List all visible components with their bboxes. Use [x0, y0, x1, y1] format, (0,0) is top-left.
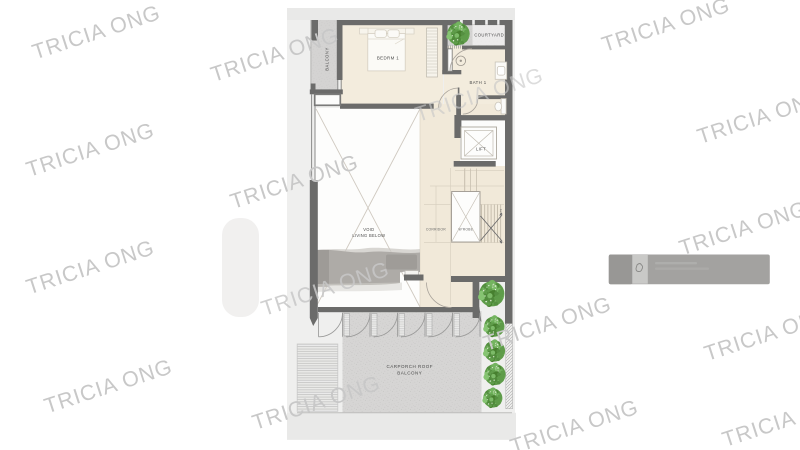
svg-text:CORRIDOR: CORRIDOR: [426, 228, 446, 232]
svg-text:BALCONY: BALCONY: [397, 371, 422, 376]
svg-text:BEDRM 1: BEDRM 1: [377, 56, 399, 61]
svg-text:LIFT: LIFT: [476, 147, 486, 152]
svg-text:COURTYARD: COURTYARD: [474, 32, 504, 37]
svg-text:2: 2: [500, 209, 502, 213]
svg-text:W'ROBE: W'ROBE: [458, 228, 473, 232]
svg-text:LIVING BELOW: LIVING BELOW: [352, 233, 385, 238]
svg-text:VOID: VOID: [363, 227, 374, 232]
svg-text:CARPORCH ROOF: CARPORCH ROOF: [387, 364, 434, 369]
